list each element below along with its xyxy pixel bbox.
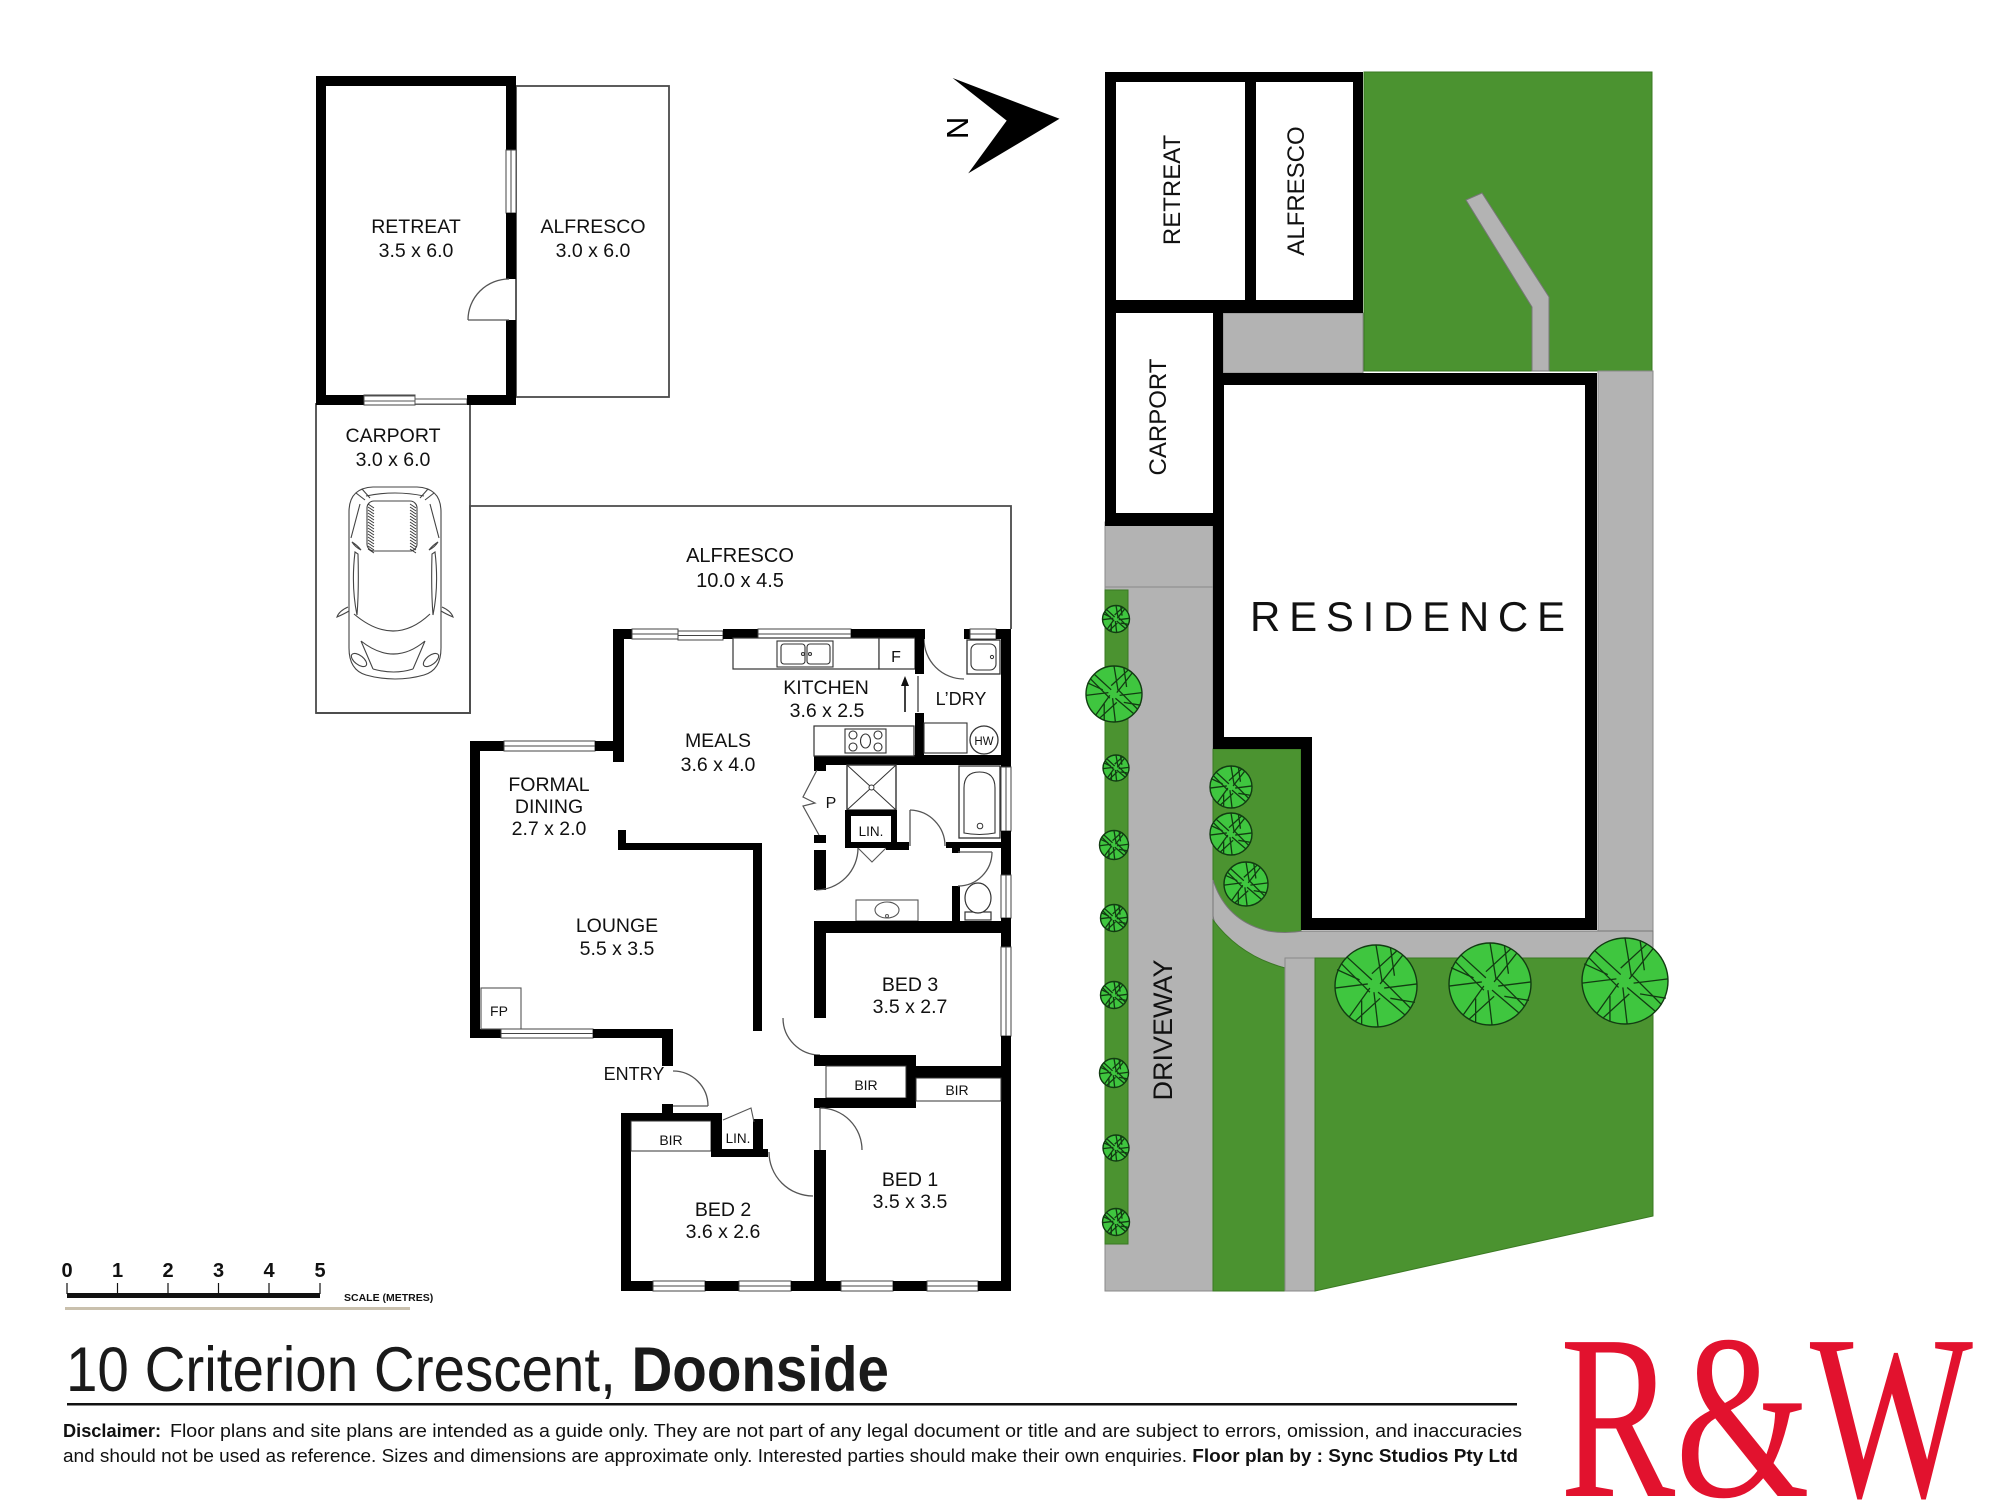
svg-text:BIR: BIR <box>945 1082 968 1098</box>
svg-text:3.5 x 2.7: 3.5 x 2.7 <box>873 996 948 1018</box>
svg-text:F: F <box>891 649 901 666</box>
svg-text:5: 5 <box>314 1260 325 1282</box>
svg-text:3.6 x 2.6: 3.6 x 2.6 <box>686 1221 761 1243</box>
svg-text:3.6 x 2.5: 3.6 x 2.5 <box>790 700 865 722</box>
svg-text:Floor plans and site plans are: Floor plans and site plans are intended … <box>170 1421 1522 1441</box>
svg-text:RETREAT: RETREAT <box>1159 135 1186 246</box>
svg-text:4: 4 <box>263 1260 275 1282</box>
svg-text:R&W: R&W <box>1560 1287 1973 1500</box>
svg-text:CARPORT: CARPORT <box>346 425 441 447</box>
svg-text:and should not be used as refe: and should not be used as reference. Siz… <box>63 1446 1518 1466</box>
svg-text:RESIDENCE: RESIDENCE <box>1250 593 1565 640</box>
svg-text:BED 1: BED 1 <box>882 1169 938 1191</box>
svg-text:P: P <box>826 795 837 812</box>
svg-text:3.6 x 4.0: 3.6 x 4.0 <box>681 754 756 776</box>
svg-text:3.5 x 6.0: 3.5 x 6.0 <box>379 240 454 262</box>
svg-text:SCALE (METRES): SCALE (METRES) <box>344 1292 433 1304</box>
svg-text:10 Criterion Crescent, Doonsid: 10 Criterion Crescent, Doonside <box>66 1335 889 1405</box>
svg-text:5.5 x 3.5: 5.5 x 3.5 <box>580 938 655 960</box>
svg-text:3: 3 <box>213 1260 224 1282</box>
svg-text:3.5 x 3.5: 3.5 x 3.5 <box>873 1191 948 1213</box>
svg-text:BED 3: BED 3 <box>882 974 938 996</box>
svg-text:N: N <box>940 117 975 139</box>
svg-text:ALFRESCO: ALFRESCO <box>686 545 794 567</box>
svg-text:MEALS: MEALS <box>685 730 751 752</box>
svg-text:BIR: BIR <box>854 1077 877 1093</box>
svg-text:FP: FP <box>490 1003 508 1019</box>
svg-text:LOUNGE: LOUNGE <box>576 915 658 937</box>
svg-text:DRIVEWAY: DRIVEWAY <box>1148 959 1178 1100</box>
svg-text:3.0 x 6.0: 3.0 x 6.0 <box>356 449 431 471</box>
svg-text:DINING: DINING <box>515 796 583 818</box>
svg-text:ALFRESCO: ALFRESCO <box>1283 126 1310 255</box>
svg-text:1: 1 <box>112 1260 123 1282</box>
svg-text:Disclaimer:: Disclaimer: <box>63 1421 161 1441</box>
svg-text:ENTRY: ENTRY <box>604 1064 665 1084</box>
svg-text:3.0 x 6.0: 3.0 x 6.0 <box>556 240 631 262</box>
svg-text:FORMAL: FORMAL <box>508 774 589 796</box>
svg-text:KITCHEN: KITCHEN <box>783 677 869 699</box>
svg-text:HW: HW <box>974 736 993 748</box>
svg-text:ALFRESCO: ALFRESCO <box>540 216 645 238</box>
svg-text:RETREAT: RETREAT <box>371 216 461 238</box>
svg-text:10.0 x 4.5: 10.0 x 4.5 <box>696 570 784 592</box>
svg-text:CARPORT: CARPORT <box>1145 358 1172 475</box>
svg-text:BED 2: BED 2 <box>695 1199 751 1221</box>
svg-text:BIR: BIR <box>659 1132 682 1148</box>
svg-text:LIN.: LIN. <box>859 824 884 839</box>
svg-text:2: 2 <box>162 1260 173 1282</box>
svg-text:2.7 x 2.0: 2.7 x 2.0 <box>512 818 587 840</box>
svg-text:L’DRY: L’DRY <box>936 689 987 709</box>
svg-text:LIN.: LIN. <box>726 1131 751 1146</box>
svg-text:0: 0 <box>61 1260 72 1282</box>
